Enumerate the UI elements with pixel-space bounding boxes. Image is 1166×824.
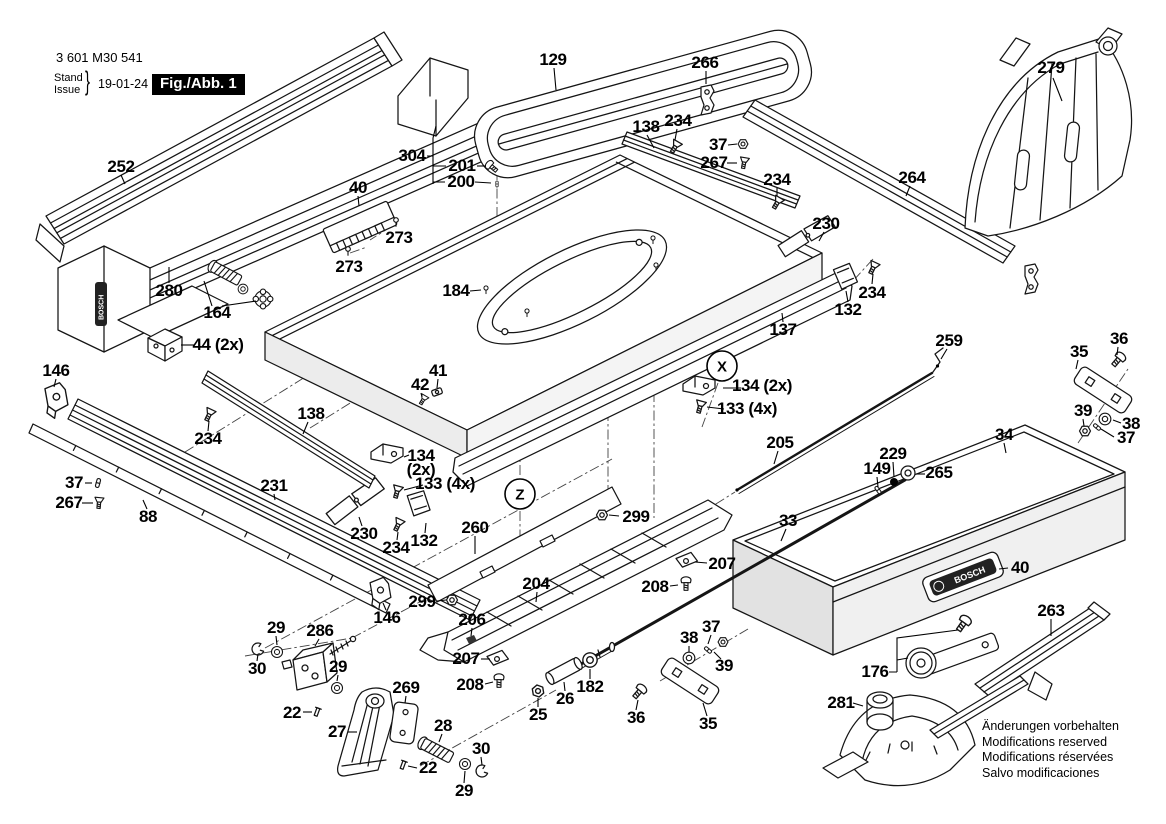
part-callout-33: 33 <box>779 511 797 531</box>
part-callout-260: 260 <box>461 518 488 538</box>
part-callout-35: 35 <box>699 714 717 734</box>
part-callout-230: 230 <box>350 524 377 544</box>
revision-brace: } <box>85 66 90 97</box>
part-callout-134-2x-: 134 (2x) <box>732 376 792 396</box>
part-callout-129: 129 <box>539 50 566 70</box>
part-callout-133-4x-: 133 (4x) <box>717 399 777 419</box>
part-callout-36: 36 <box>627 708 645 728</box>
bracket-304-drawing <box>398 58 468 136</box>
part-callout-40: 40 <box>349 178 367 198</box>
part-callout-205: 205 <box>766 433 793 453</box>
part-callout-279: 279 <box>1037 58 1064 78</box>
part-callout-182: 182 <box>576 677 603 697</box>
part-callout-137: 137 <box>769 320 796 340</box>
part-callout-267: 267 <box>700 153 727 173</box>
part-callout-207: 207 <box>452 649 479 669</box>
revision-label-issue: Issue <box>54 84 83 96</box>
part-callout-29: 29 <box>267 618 285 638</box>
part-callout-281: 281 <box>827 693 854 713</box>
part-callout-149: 149 <box>863 459 890 479</box>
modification-notes: Änderungen vorbehalten Modifications res… <box>982 719 1119 781</box>
part-callout-230: 230 <box>812 214 839 234</box>
part-callout-231: 231 <box>260 476 287 496</box>
part-callout-37: 37 <box>709 135 727 155</box>
part-callout-299: 299 <box>622 507 649 527</box>
part-callout-28: 28 <box>434 716 452 736</box>
part-callout-138: 138 <box>632 117 659 137</box>
part-callout-176: 176 <box>861 662 888 682</box>
part-callout-40: 40 <box>1011 558 1029 578</box>
revision-date: 19-01-24 <box>98 77 148 91</box>
part-callout-264: 264 <box>898 168 925 188</box>
cover-129-drawing <box>468 23 819 184</box>
part-callout-234: 234 <box>858 283 885 303</box>
part-callout-273: 273 <box>385 228 412 248</box>
part-callout-286: 286 <box>306 621 333 641</box>
part-callout-88: 88 <box>139 507 157 527</box>
part-callout-29: 29 <box>329 657 347 677</box>
part-callout-26: 26 <box>556 689 574 709</box>
part-callout-133-4x-: 133 (4x) <box>415 474 475 494</box>
part-callout-269: 269 <box>392 678 419 698</box>
part-callout-27: 27 <box>328 722 346 742</box>
view-marker-z: Z <box>515 487 524 504</box>
part-callout-25: 25 <box>529 705 547 725</box>
part-callout-234: 234 <box>382 538 409 558</box>
rear-rail-box-34-drawing: BOSCH <box>733 425 1125 655</box>
part-callout-36: 36 <box>1110 329 1128 349</box>
part-callout-30: 30 <box>248 659 266 679</box>
part-callout-37: 37 <box>1117 428 1135 448</box>
note-line: Modifications réservées <box>982 750 1119 766</box>
note-line: Salvo modificaciones <box>982 766 1119 782</box>
part-callout-164: 164 <box>203 303 230 323</box>
view-marker-x: X <box>717 359 727 376</box>
part-callout-208: 208 <box>641 577 668 597</box>
part-callout-44-2x-: 44 (2x) <box>192 335 243 355</box>
part-callout-146: 146 <box>373 608 400 628</box>
part-callout-259: 259 <box>935 331 962 351</box>
part-callout-132: 132 <box>410 531 437 551</box>
part-callout-138: 138 <box>297 404 324 424</box>
part-callout-304: 304 <box>398 146 425 166</box>
document-part-number: 3 601 M30 541 <box>56 50 143 65</box>
part-callout-204: 204 <box>522 574 549 594</box>
part-callout-234: 234 <box>194 429 221 449</box>
note-line: Modifications reserved <box>982 735 1119 751</box>
part-callout-37: 37 <box>702 617 720 637</box>
part-callout-265: 265 <box>925 463 952 483</box>
part-callout-273: 273 <box>335 257 362 277</box>
part-callout-280: 280 <box>155 281 182 301</box>
part-callout-266: 266 <box>691 53 718 73</box>
plate-176-drawing <box>906 613 1000 678</box>
part-callout-22: 22 <box>283 703 301 723</box>
revision-label-stand: Stand <box>54 72 83 84</box>
note-line: Änderungen vorbehalten <box>982 719 1119 735</box>
part-callout-263: 263 <box>1037 601 1064 621</box>
part-callout-41: 41 <box>429 361 447 381</box>
part-callout-39: 39 <box>715 656 733 676</box>
part-callout-30: 30 <box>472 739 490 759</box>
part-callout-208: 208 <box>456 675 483 695</box>
part-callout-267: 267 <box>55 493 82 513</box>
part-callout-207: 207 <box>708 554 735 574</box>
part-callout-200: 200 <box>447 172 474 192</box>
figure-label: Fig./Abb. 1 <box>152 74 245 95</box>
part-callout-234: 234 <box>763 170 790 190</box>
part-callout-39: 39 <box>1074 401 1092 421</box>
clamp-266-right <box>1025 264 1038 294</box>
part-callout-29: 29 <box>455 781 473 801</box>
bracket-269-drawing <box>389 702 418 745</box>
parts-diagram-page: BOSCH <box>0 0 1166 824</box>
part-callout-132: 132 <box>834 300 861 320</box>
revision-labels: Stand Issue <box>54 72 83 96</box>
part-callout-38: 38 <box>680 628 698 648</box>
part-callout-299: 299 <box>408 592 435 612</box>
part-callout-37: 37 <box>65 473 83 493</box>
part-callout-35: 35 <box>1070 342 1088 362</box>
part-callout-146: 146 <box>42 361 69 381</box>
fence-brand-label: BOSCH <box>99 295 106 320</box>
part-callout-34: 34 <box>995 425 1013 445</box>
part-callout-206: 206 <box>458 610 485 630</box>
part-callout-184: 184 <box>442 281 469 301</box>
diagram-canvas: BOSCH <box>0 0 1166 824</box>
part-callout-234: 234 <box>664 111 691 131</box>
part-callout-22: 22 <box>419 758 437 778</box>
part-callout-42: 42 <box>411 375 429 395</box>
part-callout-252: 252 <box>107 157 134 177</box>
